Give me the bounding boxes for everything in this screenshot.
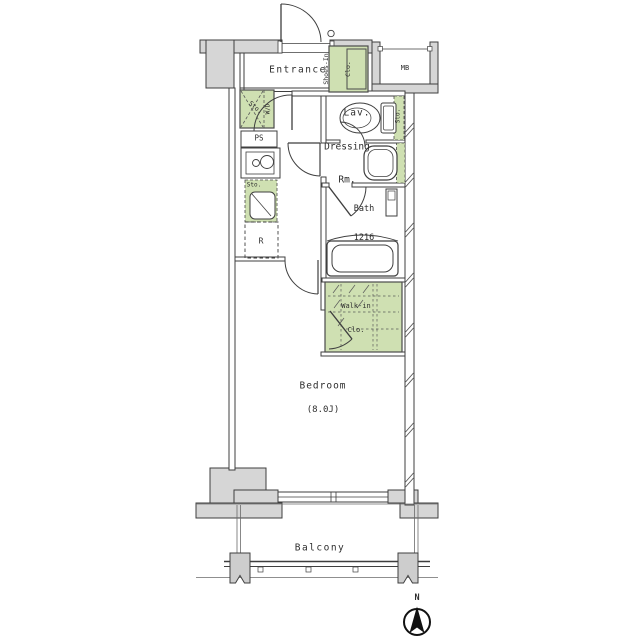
floor-plan: Entrance Shoes-In Clo. MB Sto. W/D PS St… xyxy=(0,0,640,640)
kitchen-storage-label: Sto. xyxy=(247,183,261,190)
meter-box-label: MB xyxy=(401,64,409,72)
balcony-rail-post xyxy=(398,553,418,583)
north-arrow-icon xyxy=(404,607,430,636)
balcony-rail-post xyxy=(230,553,250,583)
balcony-label: Balcony xyxy=(295,544,346,555)
meter-box xyxy=(378,47,432,52)
entrance-door xyxy=(278,4,334,53)
lavatory-label: Lav. xyxy=(344,109,371,120)
bedroom-label: Bedroom xyxy=(299,382,346,393)
dressing-door xyxy=(288,143,320,176)
door-stopper-icon xyxy=(328,30,334,36)
dressing-storage-strip xyxy=(397,143,406,183)
bedroom-door xyxy=(285,260,318,294)
bedroom-size-label: (8.0J) xyxy=(307,405,340,415)
lav-storage-label: Sto. xyxy=(396,109,403,123)
walkin-closet-label: Walk-in Clo. xyxy=(341,286,371,350)
pipe-space-label: PS xyxy=(254,135,263,144)
refrigerator-label: R xyxy=(259,236,264,245)
bath-label: Bath 1216 xyxy=(354,185,374,263)
bath-counter xyxy=(386,189,397,216)
sliding-window xyxy=(278,492,388,502)
washer-dryer-label: W/D xyxy=(266,104,273,115)
shoes-closet-label: Shoes-In Clo. xyxy=(293,53,383,84)
north-label: N xyxy=(414,594,419,604)
